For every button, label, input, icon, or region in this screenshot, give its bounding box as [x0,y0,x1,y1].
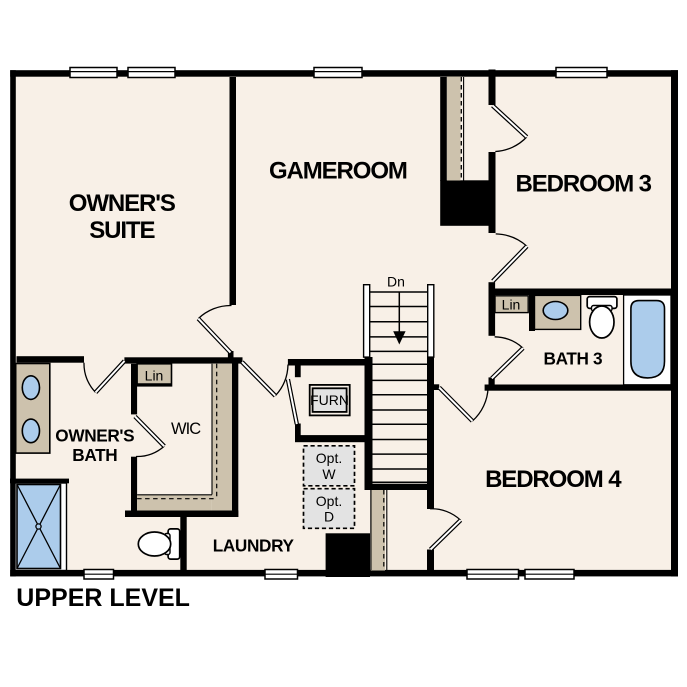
svg-text:Lin: Lin [145,368,164,384]
svg-text:UPPER LEVEL: UPPER LEVEL [16,584,190,612]
svg-text:BATH: BATH [72,445,117,465]
svg-text:SUITE: SUITE [89,217,155,244]
svg-text:BEDROOM 3: BEDROOM 3 [515,170,651,197]
svg-text:OWNER'S: OWNER'S [55,426,134,446]
svg-text:BATH 3: BATH 3 [544,348,603,368]
svg-text:GAMEROOM: GAMEROOM [269,157,407,184]
svg-text:WIC: WIC [171,420,201,438]
svg-text:BEDROOM 4: BEDROOM 4 [485,466,622,493]
svg-text:FURN: FURN [310,392,349,408]
svg-text:OWNER'S: OWNER'S [69,190,176,217]
svg-text:W: W [322,466,336,482]
svg-text:LAUNDRY: LAUNDRY [213,536,295,556]
svg-text:D: D [324,509,334,525]
svg-text:Opt.: Opt. [316,450,342,466]
svg-text:Dn: Dn [387,274,405,290]
svg-text:Opt.: Opt. [316,493,342,509]
svg-text:Lin: Lin [502,297,521,313]
